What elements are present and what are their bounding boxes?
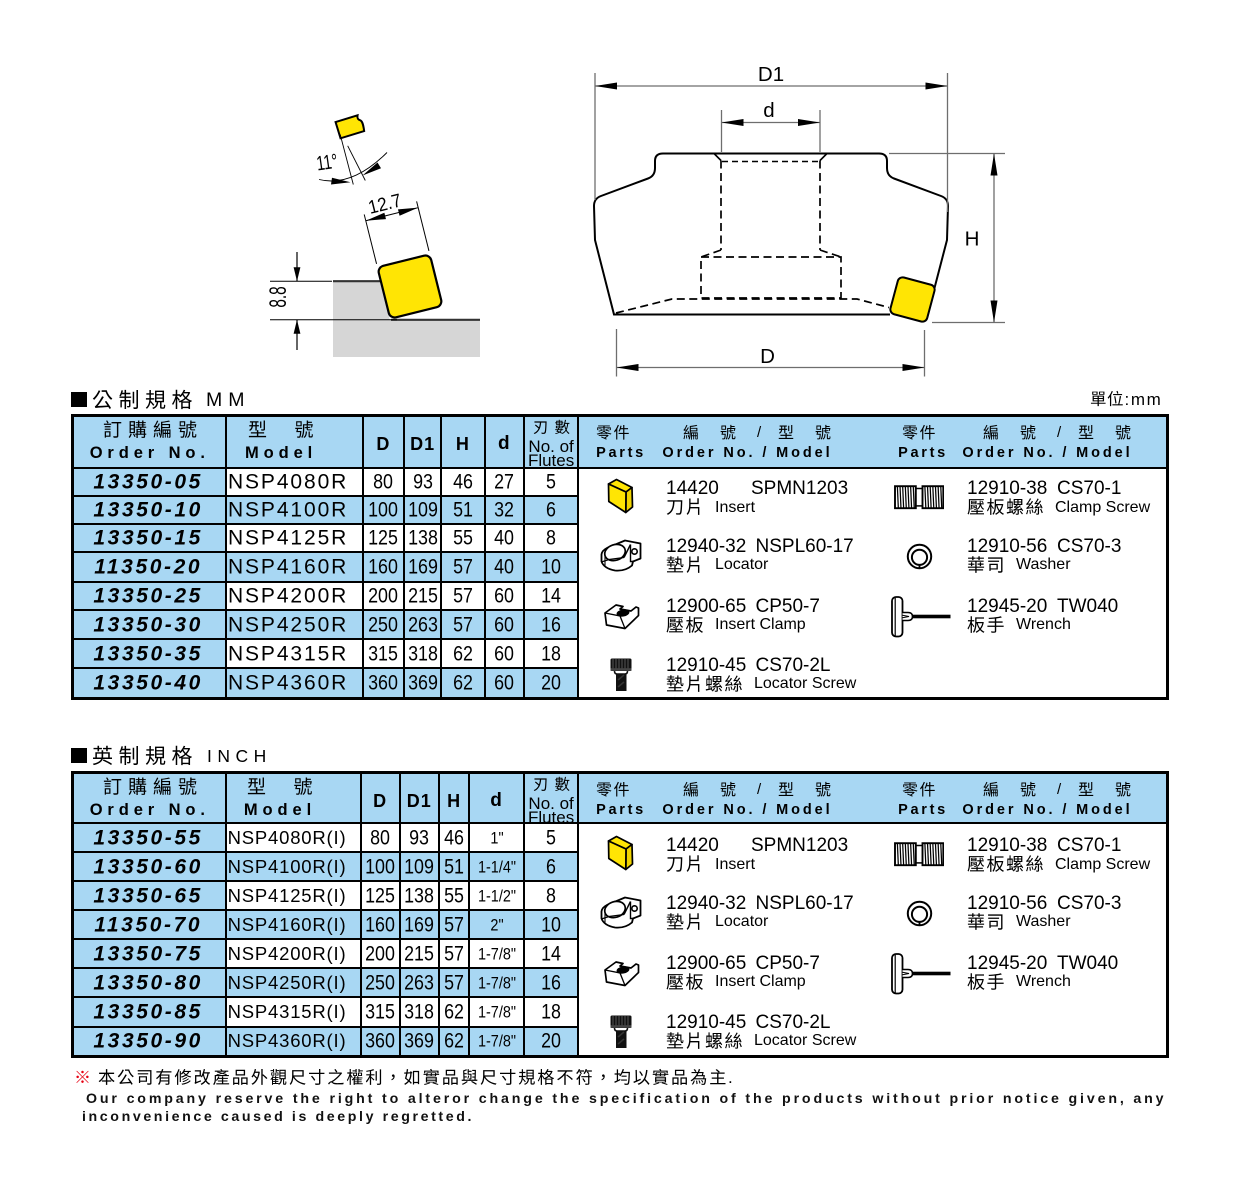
svg-text:H: H: [965, 228, 980, 251]
svg-text:d: d: [763, 99, 774, 122]
svg-text:D1: D1: [758, 63, 784, 86]
svg-text:11°: 11°: [315, 149, 339, 175]
svg-text:D: D: [760, 345, 775, 368]
svg-text:12.7: 12.7: [366, 190, 403, 218]
svg-text:8.8: 8.8: [266, 286, 292, 307]
